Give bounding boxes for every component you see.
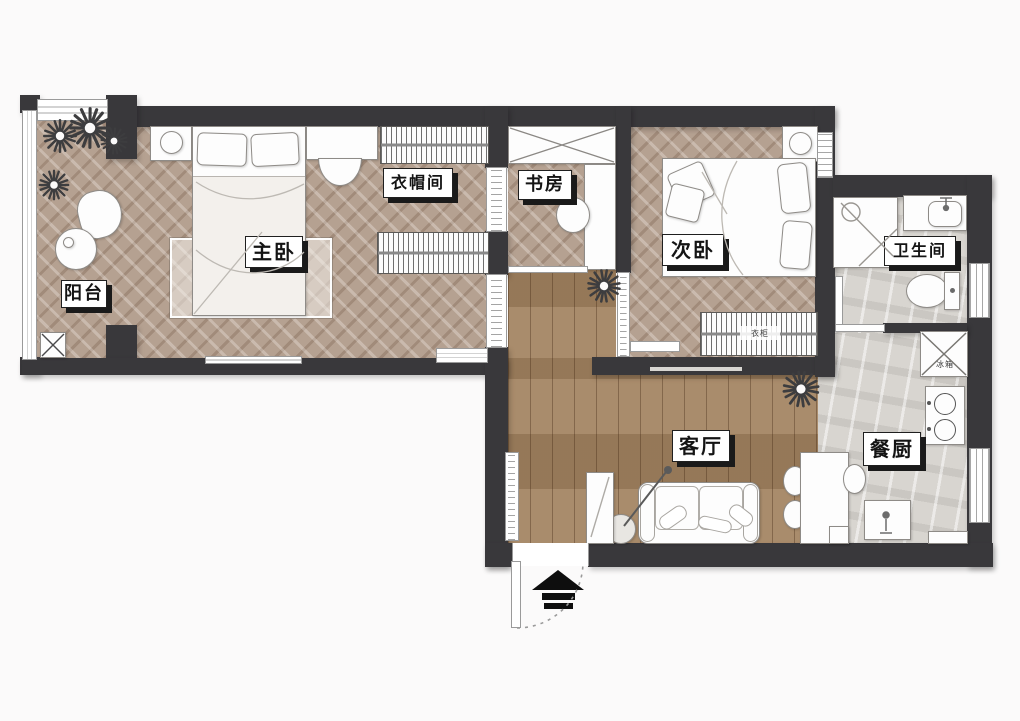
wall-top-main	[133, 106, 835, 127]
dining-side-stool	[829, 526, 849, 544]
entry-arrow-icon	[532, 570, 584, 590]
study-chair	[556, 197, 590, 233]
master-bed-pillow	[196, 132, 247, 167]
fridge	[920, 331, 968, 377]
second-bedroom-door-track	[630, 341, 680, 352]
entry-shoe-cabinet	[505, 452, 519, 541]
master-south-window	[205, 356, 302, 364]
master-label-text: 主卧	[252, 242, 296, 262]
tv	[650, 367, 742, 371]
room-label-master-bedroom: 主卧	[245, 236, 303, 268]
room-label-second-bedroom: 次卧	[662, 234, 724, 266]
stove-knob	[927, 401, 931, 405]
living-label-text: 客厅	[679, 436, 723, 456]
stove-burner	[934, 419, 956, 441]
room-label-study: 书房	[518, 170, 572, 200]
second-label-text: 次卧	[671, 240, 715, 260]
bathroom-door-track	[835, 324, 885, 332]
balcony-top-window	[37, 99, 108, 121]
stove-burner	[934, 393, 956, 415]
entry-door-leaf	[511, 561, 521, 628]
bathroom-door-leaf	[835, 276, 843, 326]
wardrobe-text: 衣柜	[751, 328, 769, 339]
balcony-side-table	[55, 228, 97, 270]
bath-label-text: 卫生间	[893, 243, 947, 259]
master-nightstand-lamp	[160, 131, 183, 154]
second-wardrobe-label: 衣柜	[740, 326, 780, 340]
wall-bottom-main	[588, 543, 993, 567]
cloak-entry-door	[486, 274, 507, 348]
entry-opening	[512, 543, 589, 566]
wall-secondbed-bottom	[592, 357, 835, 375]
cloak-wardrobe-bottom	[377, 232, 489, 274]
cloak-label-text: 衣帽间	[391, 175, 445, 191]
dining-chair	[843, 464, 866, 494]
balcony-table-cup	[63, 237, 74, 248]
kitchen-window	[969, 448, 990, 523]
master-bed-pillow	[250, 132, 300, 167]
fridge-label: 冰箱	[932, 358, 958, 370]
balcony-left-window	[22, 110, 37, 360]
wall-study-secondbed	[616, 106, 631, 273]
stove-knob	[927, 427, 931, 431]
bath-sink-basin	[928, 201, 962, 227]
balcony-shaft-box	[40, 332, 66, 358]
entry-arrow-bar	[542, 593, 575, 600]
room-label-dining-kitchen: 餐厨	[863, 432, 921, 466]
wall-stub-balcony	[106, 325, 137, 359]
toilet-bowl	[906, 274, 948, 308]
study-cabinet	[508, 126, 616, 164]
dining-label-text: 餐厨	[870, 439, 914, 459]
second-bedroom-door	[617, 272, 630, 357]
fridge-text: 冰箱	[936, 359, 954, 370]
room-label-living-room: 客厅	[672, 430, 730, 462]
room-label-cloakroom: 衣帽间	[383, 168, 453, 198]
wall-bottom-left-of-entry	[485, 543, 513, 567]
study-label-text: 书房	[525, 176, 565, 194]
toilet-button	[950, 288, 955, 293]
study-threshold	[508, 266, 588, 273]
cloak-wardrobe-top	[380, 126, 489, 164]
cloak-south-window	[436, 348, 488, 363]
kitchen-sink	[864, 500, 911, 540]
secondbed-bath-window	[817, 132, 833, 178]
second-bed-pillow	[779, 220, 813, 270]
leaning-mirror	[586, 472, 614, 544]
balcony-label-text: 阳台	[64, 285, 104, 303]
room-label-bathroom: 卫生间	[884, 236, 956, 266]
sofa-armrest	[640, 484, 655, 542]
master-side-cabinet	[306, 126, 378, 160]
second-nightstand-lamp	[789, 132, 812, 155]
kitchen-shelf	[928, 531, 968, 544]
floor-hallway	[508, 266, 616, 362]
cloak-door-panel	[486, 167, 507, 232]
bathroom-window	[969, 263, 990, 318]
room-label-balcony: 阳台	[61, 280, 107, 308]
floor-plan: 衣柜 冰箱 阳台 主卧 衣帽间 书房 次卧 卫生间 客厅 餐厨	[0, 0, 1020, 721]
second-bed-pillow	[776, 162, 811, 215]
wall-pillar-balcony	[106, 95, 137, 159]
entry-arrow-bar	[544, 603, 573, 609]
